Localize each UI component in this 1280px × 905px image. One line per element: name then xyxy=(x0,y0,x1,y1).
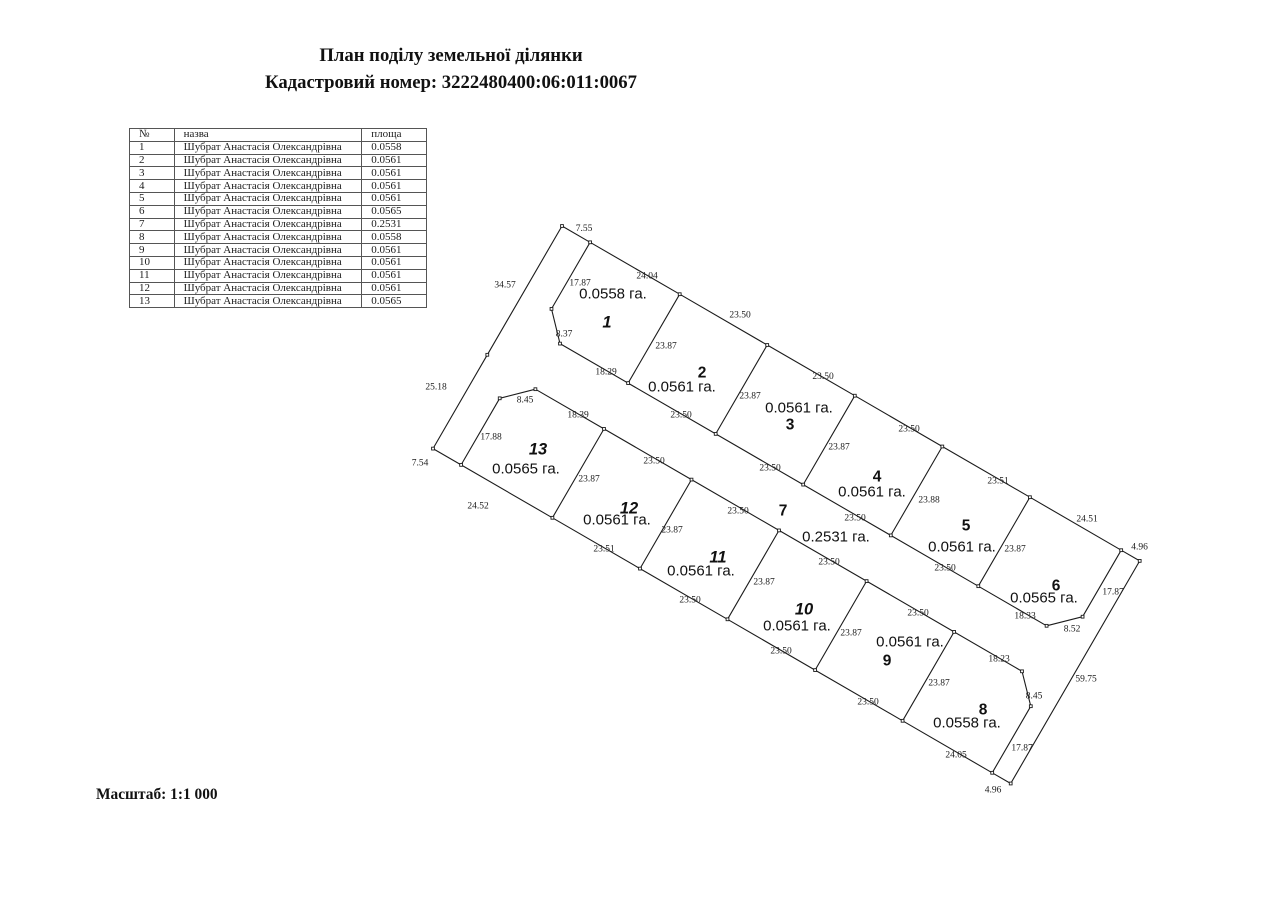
svg-text:8.37: 8.37 xyxy=(556,329,573,339)
svg-text:17.87: 17.87 xyxy=(1102,587,1124,597)
svg-text:23.87: 23.87 xyxy=(753,577,775,587)
svg-text:23.87: 23.87 xyxy=(928,678,950,688)
svg-text:23.51: 23.51 xyxy=(987,476,1009,486)
svg-text:23.87: 23.87 xyxy=(578,474,600,484)
svg-text:24.05: 24.05 xyxy=(945,750,967,760)
svg-text:0.0561 га.: 0.0561 га. xyxy=(583,511,651,528)
svg-text:23.88: 23.88 xyxy=(918,495,940,505)
svg-text:0.0561 га.: 0.0561 га. xyxy=(648,378,716,395)
svg-text:23.51: 23.51 xyxy=(593,544,615,554)
svg-text:7.55: 7.55 xyxy=(576,224,593,234)
svg-text:24.52: 24.52 xyxy=(467,501,489,511)
svg-text:9: 9 xyxy=(883,653,892,670)
svg-text:4.96: 4.96 xyxy=(1131,542,1148,552)
svg-text:8.52: 8.52 xyxy=(1064,624,1081,634)
svg-text:0.0561 га.: 0.0561 га. xyxy=(763,617,831,634)
svg-text:24.51: 24.51 xyxy=(1076,514,1098,524)
svg-text:17.88: 17.88 xyxy=(480,432,502,442)
svg-text:18.33: 18.33 xyxy=(1014,611,1036,621)
svg-text:18.29: 18.29 xyxy=(595,367,617,377)
svg-text:7.54: 7.54 xyxy=(412,458,429,468)
svg-text:23.87: 23.87 xyxy=(661,525,683,535)
svg-text:0.0561 га.: 0.0561 га. xyxy=(838,483,906,500)
svg-text:8.45: 8.45 xyxy=(1026,691,1043,701)
svg-text:0.0558 га.: 0.0558 га. xyxy=(579,285,647,302)
svg-text:18.39: 18.39 xyxy=(567,410,589,420)
svg-text:0.0561 га.: 0.0561 га. xyxy=(765,399,833,416)
svg-text:23.50: 23.50 xyxy=(759,463,781,473)
svg-text:23.50: 23.50 xyxy=(818,557,840,567)
svg-text:0.0561 га.: 0.0561 га. xyxy=(876,633,944,650)
svg-text:34.57: 34.57 xyxy=(494,280,516,290)
svg-text:4.96: 4.96 xyxy=(985,785,1002,795)
svg-text:8.45: 8.45 xyxy=(517,395,534,405)
svg-text:23.87: 23.87 xyxy=(655,341,677,351)
svg-text:17.87: 17.87 xyxy=(1011,743,1033,753)
svg-text:0.2531 га.: 0.2531 га. xyxy=(802,528,870,545)
svg-text:23.50: 23.50 xyxy=(934,563,956,573)
svg-text:23.50: 23.50 xyxy=(907,608,929,618)
svg-text:10: 10 xyxy=(795,601,814,619)
svg-text:23.50: 23.50 xyxy=(844,513,866,523)
svg-text:0.0565 га.: 0.0565 га. xyxy=(492,460,560,477)
svg-text:23.50: 23.50 xyxy=(729,310,751,320)
svg-text:23.87: 23.87 xyxy=(739,391,761,401)
svg-text:23.50: 23.50 xyxy=(857,697,879,707)
svg-text:23.50: 23.50 xyxy=(812,372,834,382)
svg-text:23.50: 23.50 xyxy=(643,456,665,466)
svg-text:0.0558 га.: 0.0558 га. xyxy=(933,714,1001,731)
svg-text:23.87: 23.87 xyxy=(828,442,850,452)
svg-text:59.75: 59.75 xyxy=(1075,674,1097,684)
svg-text:23.87: 23.87 xyxy=(840,628,862,638)
svg-text:23.50: 23.50 xyxy=(898,424,920,434)
svg-text:23.50: 23.50 xyxy=(727,506,749,516)
svg-text:13: 13 xyxy=(529,441,547,459)
svg-text:1: 1 xyxy=(602,314,611,332)
svg-text:5: 5 xyxy=(962,518,971,535)
svg-text:0.0561 га.: 0.0561 га. xyxy=(928,538,996,555)
svg-text:7: 7 xyxy=(779,503,788,520)
svg-text:23.50: 23.50 xyxy=(670,410,692,420)
svg-text:3: 3 xyxy=(786,417,795,434)
svg-text:18.23: 18.23 xyxy=(988,654,1010,664)
svg-text:0.0565 га.: 0.0565 га. xyxy=(1010,589,1078,606)
svg-text:25.18: 25.18 xyxy=(425,382,447,392)
svg-text:0.0561 га.: 0.0561 га. xyxy=(667,562,735,579)
svg-text:23.50: 23.50 xyxy=(770,646,792,656)
svg-text:23.87: 23.87 xyxy=(1004,544,1026,554)
svg-text:23.50: 23.50 xyxy=(679,595,701,605)
svg-text:24.04: 24.04 xyxy=(636,271,658,281)
